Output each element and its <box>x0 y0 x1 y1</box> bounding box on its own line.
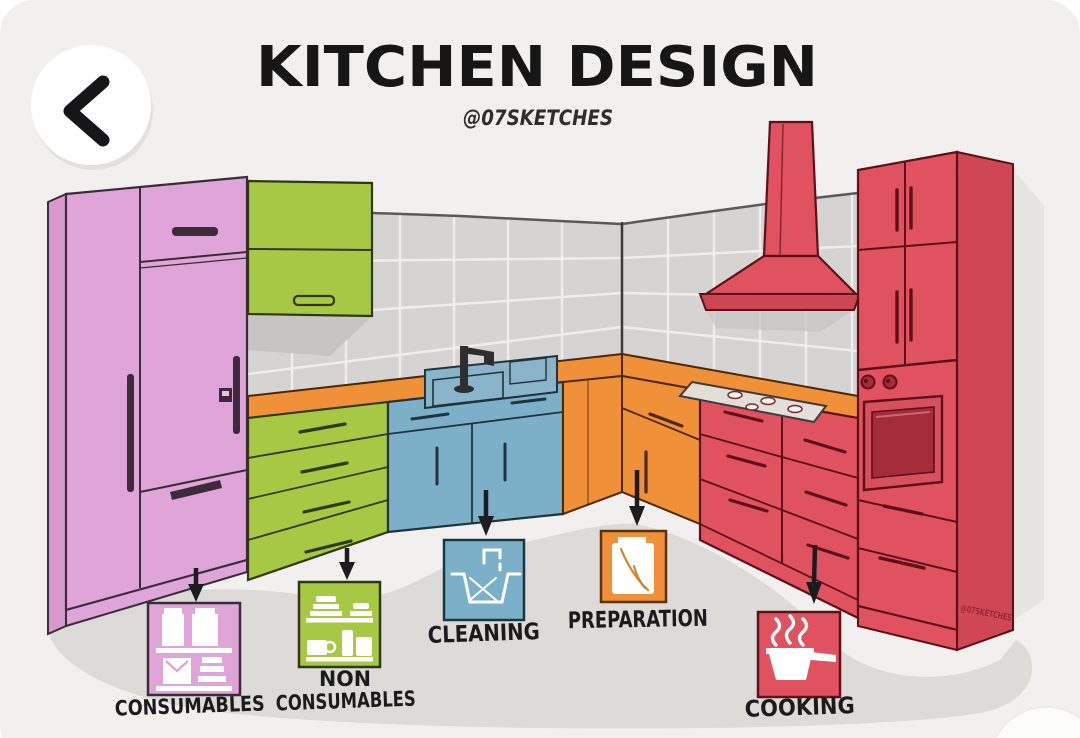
poster-title: KITCHEN DESIGN <box>256 35 818 100</box>
legend-cooking-icon steaming-pan-icon <box>758 612 840 697</box>
photo-viewer: @07SKETCHES <box>0 0 1080 738</box>
legend-consumables-icon pantry-shelves-icon <box>148 603 240 695</box>
label-cleaning: CLEANING <box>427 619 540 649</box>
kitchen-design-poster: @07SKETCHES <box>0 0 1080 738</box>
poster-credit: @07SKETCHES <box>463 106 613 130</box>
cabinet-side-shadow <box>1013 170 1044 620</box>
pink-tall-cabinet <box>48 177 247 634</box>
green-upper-cabinet <box>248 181 372 316</box>
label-non-consumables-line2: CONSUMABLES <box>275 687 416 716</box>
label-preparation: PREPARATION <box>568 606 708 634</box>
built-in-oven <box>864 396 942 490</box>
legend-preparation-icon cutting-board-knife-icon <box>601 531 666 602</box>
label-non-consumables-line1: NON <box>319 667 371 691</box>
label-cooking: COOKING <box>744 693 855 723</box>
legend-cleaning-icon sink-faucet-icon <box>444 540 524 620</box>
legend-non-consumables-icon dishware-shelves-icon <box>299 582 380 667</box>
red-tall-cabinet: @07SKETCHES <box>858 152 1013 650</box>
